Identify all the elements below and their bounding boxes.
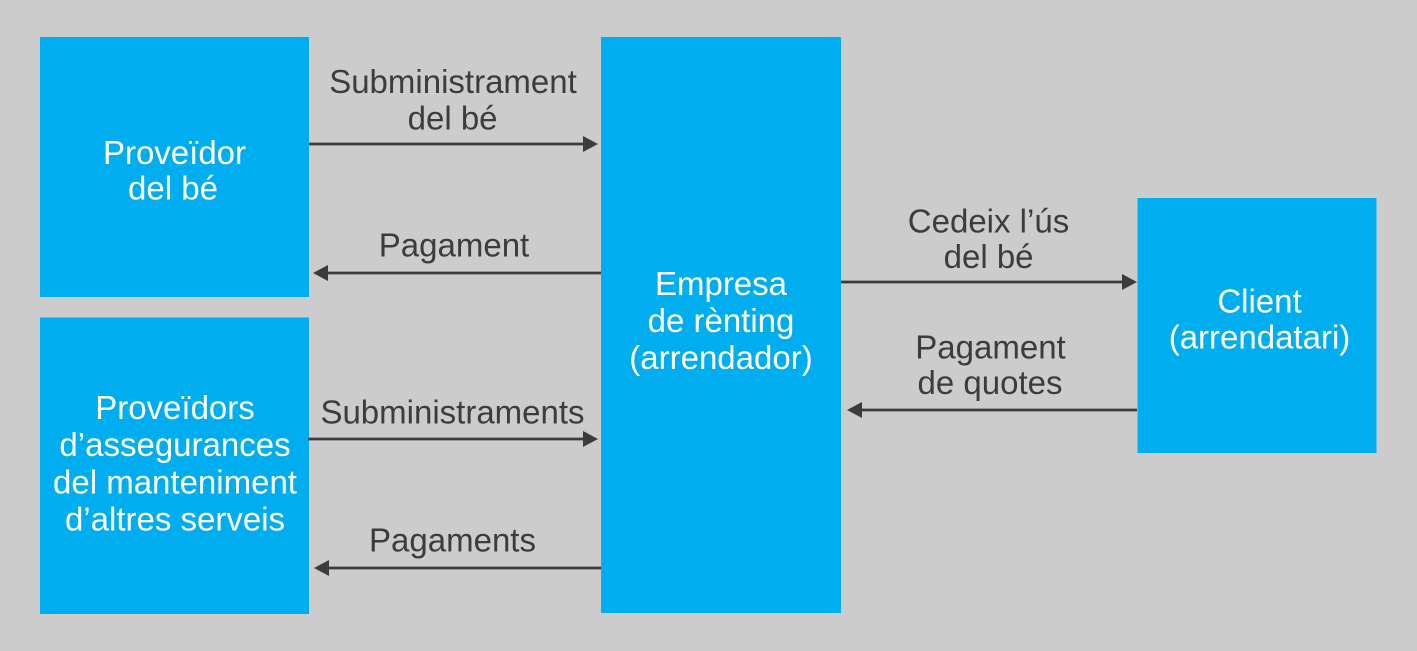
svg-text:(arrendador): (arrendador) — [629, 339, 812, 376]
svg-text:Pagament: Pagament — [915, 329, 1065, 366]
svg-text:del bé: del bé — [944, 238, 1034, 275]
svg-text:Proveïdors: Proveïdors — [95, 389, 255, 426]
svg-text:Client: Client — [1217, 283, 1301, 320]
svg-text:Cedeix l’ús: Cedeix l’ús — [908, 203, 1069, 240]
svg-text:(arrendatari): (arrendatari) — [1169, 319, 1351, 356]
svg-text:Subministraments: Subministraments — [320, 394, 584, 431]
svg-text:d’assegurances: d’assegurances — [59, 426, 290, 463]
svg-text:d’altres serveis: d’altres serveis — [65, 501, 285, 538]
svg-text:Pagament: Pagament — [379, 227, 529, 264]
svg-text:Empresa: Empresa — [655, 265, 788, 302]
svg-text:Subministrament: Subministrament — [329, 63, 577, 100]
svg-text:Proveïdor: Proveïdor — [103, 134, 246, 171]
svg-text:del bé: del bé — [128, 170, 218, 207]
svg-text:del manteniment: del manteniment — [53, 463, 297, 500]
svg-text:Pagaments: Pagaments — [369, 522, 536, 559]
svg-text:del bé: del bé — [408, 100, 498, 137]
svg-text:de quotes: de quotes — [918, 364, 1063, 401]
svg-text:de rènting: de rènting — [648, 302, 795, 339]
